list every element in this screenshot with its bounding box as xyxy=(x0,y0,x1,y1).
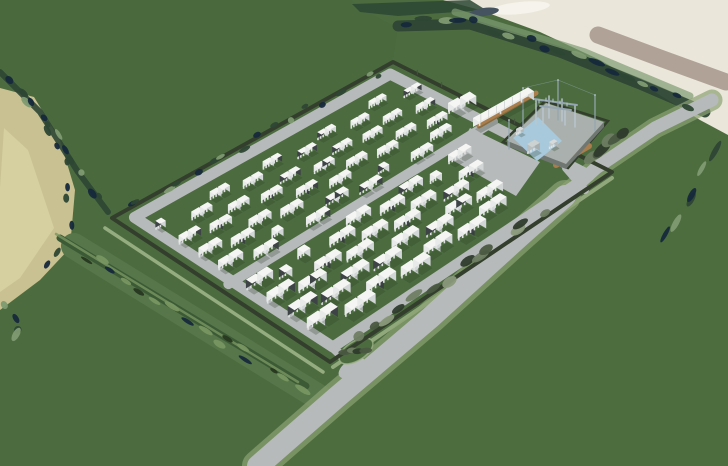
mast-tip xyxy=(594,94,596,96)
mast-tip xyxy=(508,119,510,121)
mast-tip xyxy=(522,87,524,89)
render-canvas xyxy=(0,0,728,466)
mast-tip xyxy=(557,79,559,81)
site-render xyxy=(0,0,728,466)
